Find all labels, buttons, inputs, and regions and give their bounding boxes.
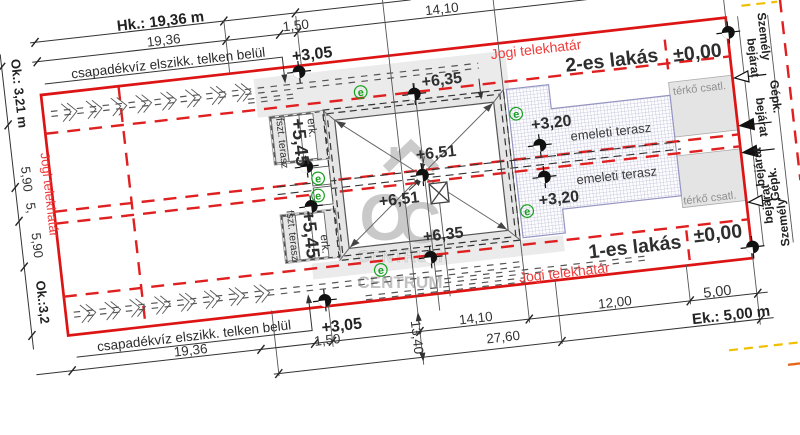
svg-text:1,50: 1,50 xyxy=(313,331,341,349)
svg-text:1,50: 1,50 xyxy=(282,17,310,35)
svg-text:erk.: erk. xyxy=(304,118,318,138)
svg-text:5,90: 5,90 xyxy=(18,166,36,193)
svg-text:5,: 5, xyxy=(23,202,39,214)
svg-text:5,90: 5,90 xyxy=(28,232,46,259)
svg-text:erk.: erk. xyxy=(318,234,332,254)
svg-text:5,00: 5,00 xyxy=(703,283,733,302)
